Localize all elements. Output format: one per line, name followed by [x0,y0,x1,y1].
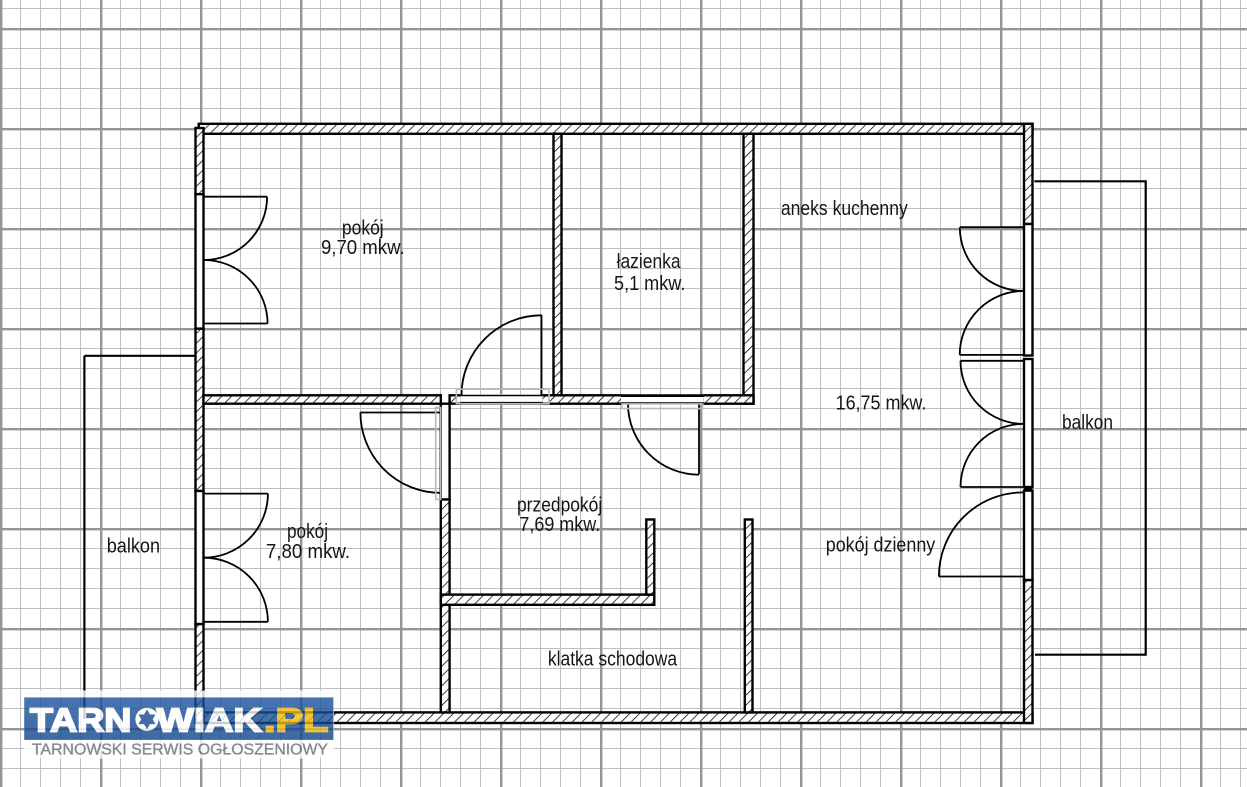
svg-text:.PL: .PL [264,702,328,739]
svg-text:łazienka: łazienka [617,251,682,273]
svg-text:7,80 mkw.: 7,80 mkw. [266,541,350,563]
svg-text:16,75 mkw.: 16,75 mkw. [836,393,927,415]
svg-text:WIAK: WIAK [157,702,263,739]
svg-text:klatka schodowa: klatka schodowa [548,648,678,670]
svg-text:9,70 mkw.: 9,70 mkw. [321,237,405,259]
svg-text:pokój dzienny: pokój dzienny [826,534,936,556]
svg-text:7,69 mkw.: 7,69 mkw. [519,514,600,536]
svg-text:TARNOWSKI SERWIS OGŁOSZENIOWY: TARNOWSKI SERWIS OGŁOSZENIOWY [32,741,328,758]
svg-text:balkon: balkon [1062,412,1113,434]
svg-text:pokój: pokój [287,521,328,543]
svg-text:balkon: balkon [107,535,160,557]
svg-text:5,1 mkw.: 5,1 mkw. [614,273,685,295]
svg-text:aneks kuchenny: aneks kuchenny [781,198,908,220]
svg-text:przedpokój: przedpokój [517,495,602,517]
svg-text:TARN: TARN [30,702,131,739]
